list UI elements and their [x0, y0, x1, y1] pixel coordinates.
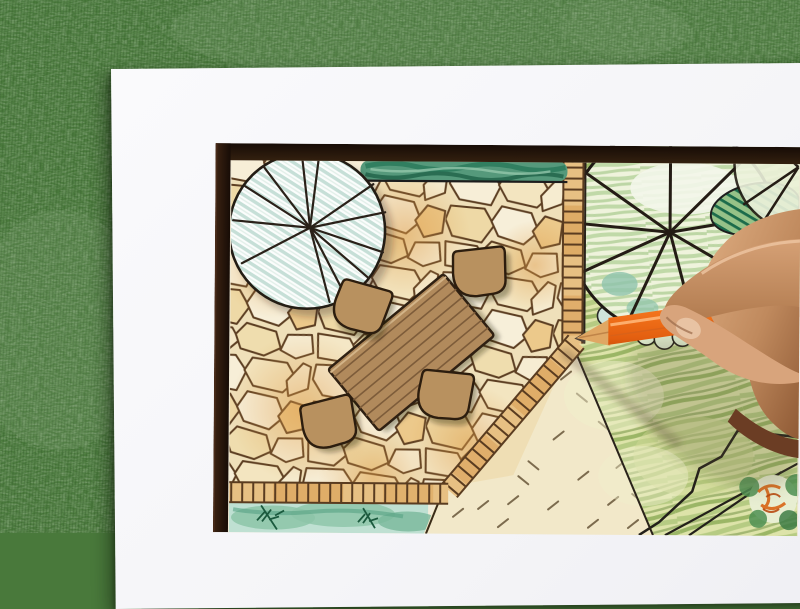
- garden-plan-drawing: [213, 143, 800, 536]
- bed-edge-line: [584, 163, 585, 344]
- plan-sheet-paper: [111, 62, 800, 609]
- photo-scene: [0, 0, 800, 533]
- hedge-strip: [360, 160, 567, 182]
- planting-bed: [228, 500, 438, 533]
